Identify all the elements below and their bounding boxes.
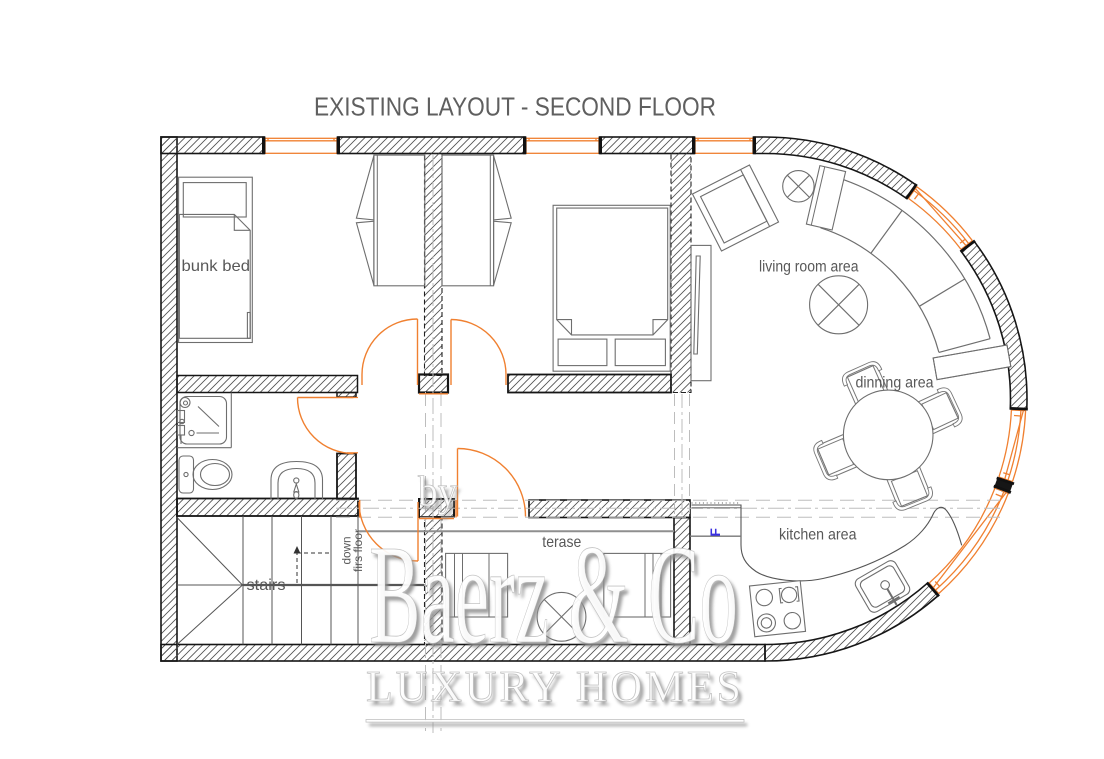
- svg-text:dinning area: dinning area: [856, 375, 934, 392]
- svg-text:EXISTING LAYOUT - SECOND FLOOR: EXISTING LAYOUT - SECOND FLOOR: [314, 92, 716, 122]
- svg-text:firs floor: firs floor: [351, 529, 365, 572]
- svg-text:living room area: living room area: [759, 258, 859, 275]
- svg-text:by: by: [418, 469, 458, 516]
- svg-text:Baerz & Co: Baerz & Co: [369, 515, 738, 673]
- svg-text:bunk bed: bunk bed: [182, 258, 251, 275]
- svg-text:stairs: stairs: [247, 577, 286, 594]
- svg-text:kitchen area: kitchen area: [779, 527, 857, 544]
